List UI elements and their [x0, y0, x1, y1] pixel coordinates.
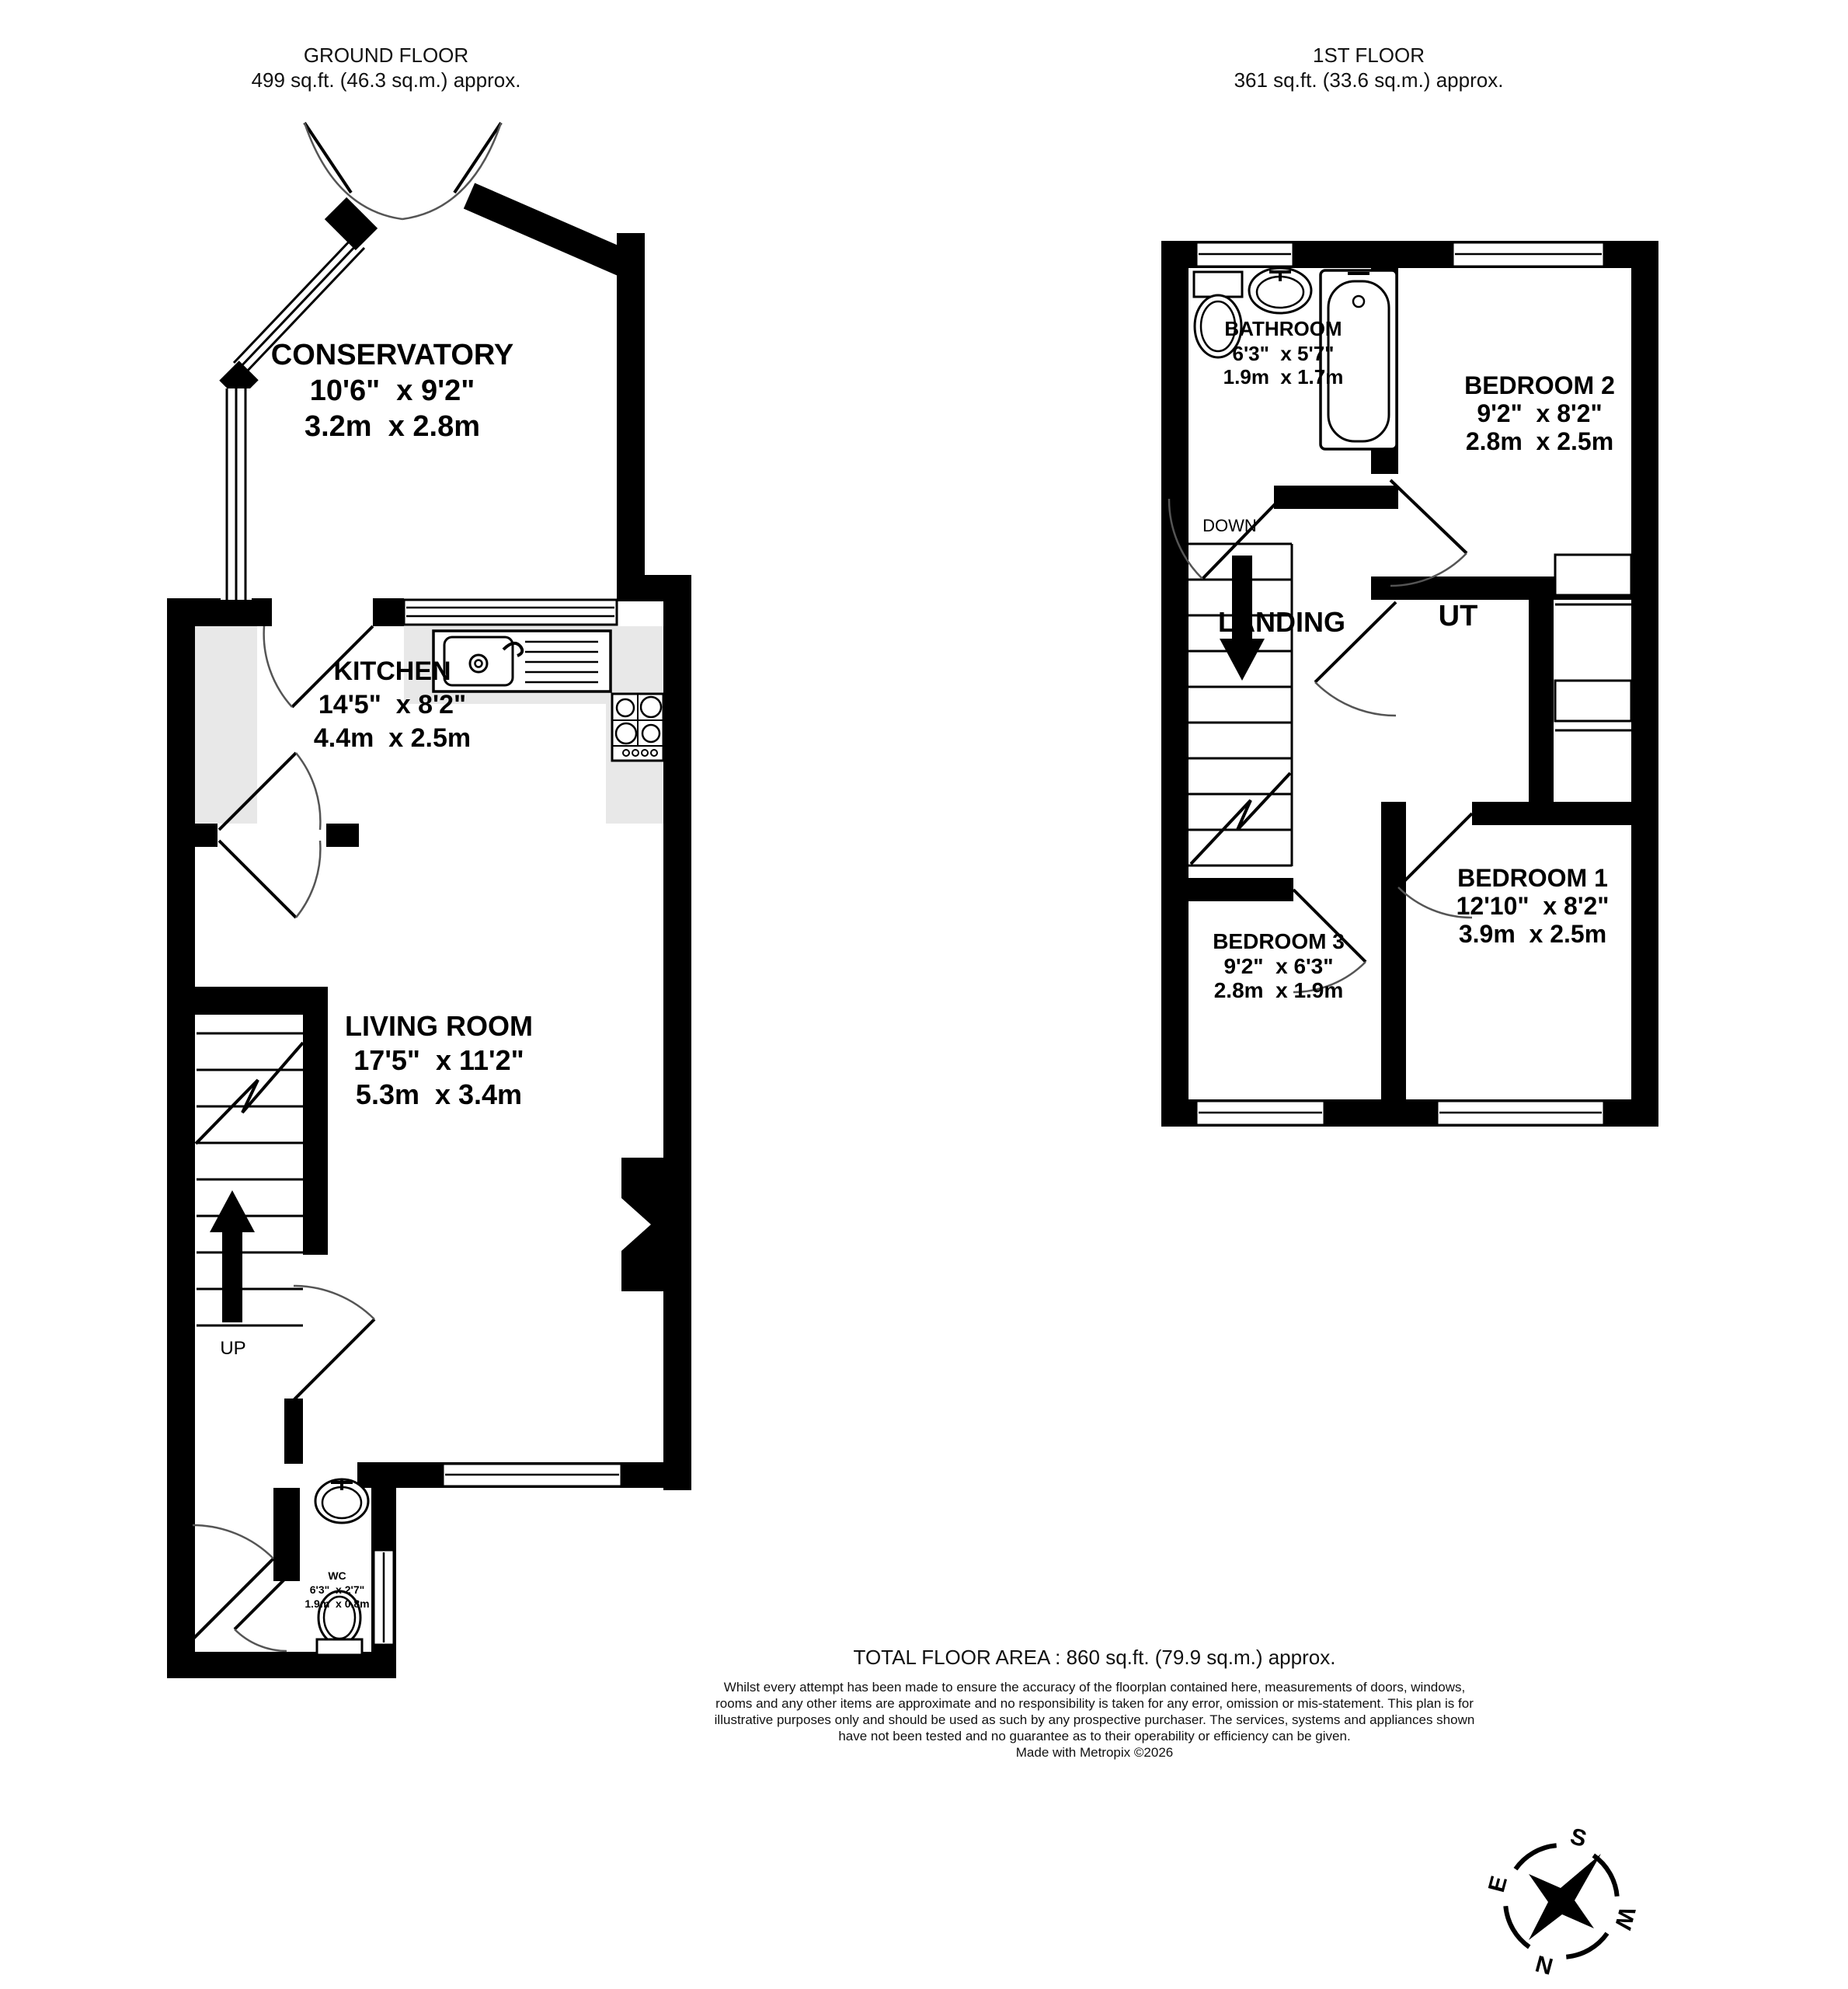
kitchen-hob: [612, 694, 663, 761]
metropix-credit: Made with Metropix ©2026: [706, 1744, 1483, 1761]
fireplace: [621, 1158, 663, 1291]
conservatory-metric: 3.2m x 2.8m: [305, 410, 480, 444]
bedroom1-metric: 3.9m x 2.5m: [1459, 920, 1606, 949]
conservatory-label: CONSERVATORY: [271, 339, 514, 372]
landing-label: LANDING: [1218, 606, 1345, 639]
bedroom2-metric: 2.8m x 2.5m: [1466, 427, 1613, 456]
bedroom1-label: BEDROOM 1: [1457, 864, 1608, 893]
up-label: UP: [220, 1338, 245, 1360]
bathroom-basin: [1249, 268, 1311, 313]
floorplan-page: S W N E GROUND FLOOR 499 sq.ft. (46.3 sq…: [0, 0, 1848, 1989]
conservatory-corner-wall-right: [469, 196, 626, 264]
kitchen-metric: 4.4m x 2.5m: [314, 723, 471, 754]
first-floor-title: 1ST FLOOR: [1313, 44, 1425, 68]
conservatory-window-left: [221, 388, 252, 600]
total-floor-area: TOTAL FLOOR AREA : 860 sq.ft. (79.9 sq.m…: [706, 1646, 1483, 1670]
conservatory-corner-wall-left: [336, 208, 367, 239]
first-floor-doors: [1169, 480, 1472, 992]
bathroom-imperial: 6'3" x 5'7": [1233, 342, 1335, 366]
bedroom3-metric: 2.8m x 1.9m: [1214, 978, 1344, 1003]
ut-label: UT: [1439, 600, 1478, 633]
built-in-wardrobes: [1555, 555, 1631, 730]
wc-imperial: 6'3" x 2'7": [310, 1583, 365, 1596]
living-room-window: [443, 1464, 621, 1486]
down-label: DOWN: [1202, 516, 1257, 536]
bathroom-metric: 1.9m x 1.7m: [1223, 365, 1344, 389]
compass-letter-s: S: [1568, 1824, 1589, 1852]
wc-metric: 1.9m x 0.8m: [305, 1597, 369, 1610]
bathroom-label: BATHROOM: [1224, 317, 1342, 341]
compass-star: [1529, 1854, 1601, 1940]
bedroom3-imperial: 9'2" x 6'3": [1223, 954, 1333, 979]
living-room-imperial: 17'5" x 11'2": [353, 1044, 524, 1077]
compass-letter-w: W: [1610, 1904, 1640, 1933]
bedroom2-label: BEDROOM 2: [1464, 371, 1615, 400]
kitchen-counter-left: [195, 614, 257, 824]
bedroom2-imperial: 9'2" x 8'2": [1477, 399, 1602, 428]
kitchen-window: [404, 600, 617, 625]
bedroom1-imperial: 12'10" x 8'2": [1456, 892, 1610, 921]
disclaimer-text: Whilst every attempt has been made to en…: [706, 1679, 1483, 1744]
living-room-metric: 5.3m x 3.4m: [356, 1078, 522, 1111]
compass-letter-e: E: [1484, 1873, 1512, 1895]
up-arrow: [210, 1190, 255, 1322]
ground-floor-title: GROUND FLOOR: [304, 44, 468, 68]
bedroom3-label: BEDROOM 3: [1213, 929, 1345, 954]
living-room-label: LIVING ROOM: [345, 1010, 533, 1043]
stairs-ground: [196, 1033, 303, 1325]
compass-letter-n: N: [1533, 1950, 1555, 1979]
wc-basin: [315, 1479, 368, 1523]
footer: TOTAL FLOOR AREA : 860 sq.ft. (79.9 sq.m…: [706, 1646, 1483, 1761]
wc-window: [374, 1550, 394, 1645]
kitchen-sink: [433, 631, 611, 691]
wc-label: WC: [328, 1569, 346, 1582]
ground-floor-area: 499 sq.ft. (46.3 sq.m.) approx.: [252, 68, 521, 92]
kitchen-label: KITCHEN: [333, 657, 451, 687]
kitchen-imperial: 14'5" x 8'2": [318, 690, 466, 720]
compass-rose: S W N E: [1484, 1824, 1640, 1979]
first-floor-area: 361 sq.ft. (33.6 sq.m.) approx.: [1234, 68, 1504, 92]
conservatory-imperial: 10'6" x 9'2": [310, 374, 475, 408]
